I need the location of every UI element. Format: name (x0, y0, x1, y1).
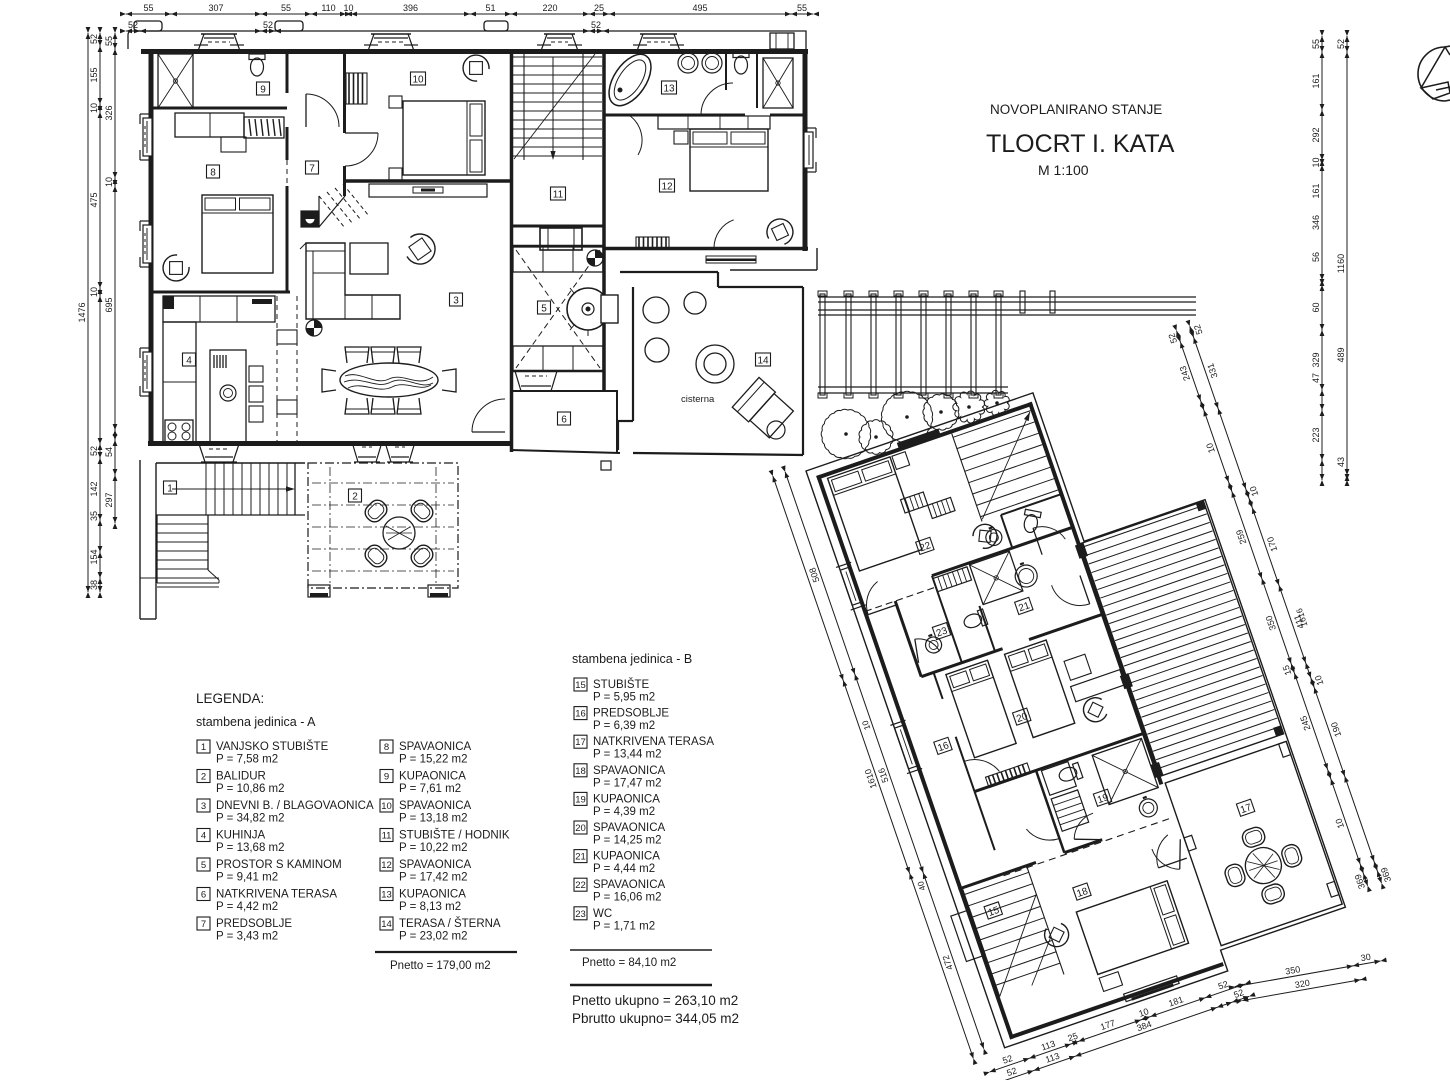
svg-text:155: 155 (89, 67, 99, 82)
svg-text:52: 52 (591, 20, 601, 30)
svg-text:220: 220 (542, 3, 557, 13)
svg-text:142: 142 (89, 481, 99, 496)
svg-text:P = 9,41 m2: P = 9,41 m2 (216, 872, 278, 884)
svg-text:43: 43 (1336, 457, 1346, 467)
svg-text:12: 12 (381, 860, 392, 871)
svg-text:4: 4 (186, 356, 192, 367)
svg-text:695: 695 (104, 297, 114, 312)
svg-text:10: 10 (89, 103, 99, 113)
svg-text:SPAVAONICA: SPAVAONICA (399, 741, 472, 753)
svg-text:P = 17,42 m2: P = 17,42 m2 (399, 872, 468, 884)
svg-text:DNEVNI B. / BLAGOVAONICA: DNEVNI B. / BLAGOVAONICA (216, 800, 374, 812)
svg-text:Pnetto = 179,00 m2: Pnetto = 179,00 m2 (390, 960, 491, 972)
svg-text:161: 161 (1311, 183, 1321, 198)
svg-text:NOVOPLANIRANO STANJE: NOVOPLANIRANO STANJE (990, 102, 1162, 117)
svg-text:Pnetto ukupno = 263,10 m2: Pnetto ukupno = 263,10 m2 (572, 993, 738, 1008)
svg-text:14: 14 (757, 356, 769, 367)
svg-text:110: 110 (321, 3, 335, 13)
svg-text:52: 52 (1336, 39, 1346, 49)
svg-text:154: 154 (89, 549, 99, 564)
svg-text:KUPAONICA: KUPAONICA (399, 889, 466, 901)
svg-text:KUPAONICA: KUPAONICA (593, 793, 660, 805)
svg-text:223: 223 (1311, 427, 1321, 442)
svg-text:3: 3 (201, 801, 206, 812)
svg-text:KUHINJA: KUHINJA (216, 830, 266, 842)
svg-text:P = 7,58 m2: P = 7,58 m2 (216, 754, 278, 766)
svg-text:P = 6,39 m2: P = 6,39 m2 (593, 720, 655, 732)
svg-text:cisterna: cisterna (681, 394, 715, 405)
svg-text:55: 55 (143, 3, 153, 13)
svg-text:22: 22 (575, 880, 586, 891)
svg-text:P = 13,44 m2: P = 13,44 m2 (593, 749, 662, 761)
svg-text:25: 25 (594, 3, 604, 13)
svg-text:51: 51 (485, 3, 495, 13)
svg-text:SPAVAONICA: SPAVAONICA (399, 800, 472, 812)
svg-text:3: 3 (453, 296, 459, 307)
svg-text:Pbrutto ukupno= 344,05 m2: Pbrutto ukupno= 344,05 m2 (572, 1011, 739, 1026)
svg-text:NATKRIVENA TERASA: NATKRIVENA TERASA (593, 736, 714, 748)
svg-text:NATKRIVENA TERASA: NATKRIVENA TERASA (216, 889, 337, 901)
svg-text:1: 1 (201, 742, 206, 753)
svg-text:15: 15 (575, 680, 586, 691)
svg-text:13: 13 (381, 890, 392, 901)
svg-text:1160: 1160 (1336, 254, 1346, 273)
svg-text:52: 52 (89, 34, 99, 44)
svg-text:P = 23,02 m2: P = 23,02 m2 (399, 931, 468, 943)
svg-text:13: 13 (663, 84, 675, 95)
svg-text:52: 52 (263, 20, 273, 30)
svg-text:PROSTOR S KAMINOM: PROSTOR S KAMINOM (216, 859, 342, 871)
svg-text:P = 17,47 m2: P = 17,47 m2 (593, 777, 662, 789)
svg-text:P = 1,71 m2: P = 1,71 m2 (593, 920, 655, 932)
svg-text:14: 14 (381, 919, 392, 930)
svg-text:23: 23 (575, 909, 586, 920)
svg-text:396: 396 (403, 3, 418, 13)
svg-text:10: 10 (89, 287, 99, 297)
svg-text:17: 17 (575, 737, 586, 748)
svg-text:P = 4,42 m2: P = 4,42 m2 (216, 901, 278, 913)
svg-text:7: 7 (309, 164, 315, 175)
svg-text:292: 292 (1311, 127, 1321, 142)
svg-text:52: 52 (128, 20, 138, 30)
svg-text:P = 16,06 m2: P = 16,06 m2 (593, 892, 662, 904)
svg-text:stambena jedinica - B: stambena jedinica - B (572, 652, 692, 666)
svg-text:489: 489 (1336, 347, 1346, 362)
svg-text:20: 20 (575, 823, 586, 834)
svg-text:P = 5,95 m2: P = 5,95 m2 (593, 692, 655, 704)
svg-text:P = 4,39 m2: P = 4,39 m2 (593, 806, 655, 818)
svg-text:11: 11 (382, 831, 392, 842)
svg-text:30: 30 (1360, 952, 1372, 964)
svg-text:Pnetto = 84,10 m2: Pnetto = 84,10 m2 (582, 957, 676, 969)
svg-text:5: 5 (201, 860, 206, 871)
svg-text:TERASA / ŠTERNA: TERASA / ŠTERNA (399, 917, 501, 930)
svg-text:stambena jedinica - A: stambena jedinica - A (196, 715, 316, 729)
svg-text:PREDSOBLJE: PREDSOBLJE (216, 918, 292, 930)
svg-text:60: 60 (1311, 302, 1321, 312)
svg-text:10: 10 (412, 75, 424, 86)
svg-text:55: 55 (1311, 39, 1321, 49)
svg-text:56: 56 (1311, 252, 1321, 262)
svg-text:6: 6 (201, 890, 206, 901)
svg-text:SPAVAONICA: SPAVAONICA (593, 765, 666, 777)
svg-text:P = 8,13 m2: P = 8,13 m2 (399, 901, 461, 913)
svg-text:1: 1 (167, 484, 173, 495)
svg-text:18: 18 (575, 766, 586, 777)
svg-text:LEGENDA:: LEGENDA: (196, 691, 264, 706)
svg-text:52: 52 (89, 446, 99, 456)
svg-text:KUPAONICA: KUPAONICA (399, 771, 466, 783)
svg-text:PREDSOBLJE: PREDSOBLJE (593, 708, 669, 720)
svg-text:21: 21 (575, 852, 586, 863)
svg-text:161: 161 (1311, 73, 1321, 88)
svg-text:9: 9 (384, 772, 389, 783)
svg-text:4: 4 (201, 831, 206, 842)
svg-text:P = 13,68 m2: P = 13,68 m2 (216, 842, 285, 854)
svg-text:SPAVAONICA: SPAVAONICA (593, 879, 666, 891)
svg-text:54: 54 (104, 447, 114, 457)
svg-text:495: 495 (692, 3, 707, 13)
svg-text:TLOCRT I. KATA: TLOCRT I. KATA (986, 130, 1175, 158)
svg-text:P = 3,43 m2: P = 3,43 m2 (216, 931, 278, 943)
svg-text:2: 2 (201, 772, 206, 783)
svg-text:47: 47 (1311, 373, 1321, 383)
svg-text:329: 329 (1311, 352, 1321, 367)
svg-text:P = 4,44 m2: P = 4,44 m2 (593, 863, 655, 875)
svg-text:SPAVAONICA: SPAVAONICA (593, 822, 666, 834)
svg-text:10: 10 (381, 801, 392, 812)
svg-text:M 1:100: M 1:100 (1038, 162, 1089, 178)
svg-text:P = 7,61 m2: P = 7,61 m2 (399, 783, 461, 795)
svg-text:55: 55 (281, 3, 291, 13)
svg-text:8: 8 (384, 742, 389, 753)
svg-text:16: 16 (575, 709, 586, 720)
svg-text:11: 11 (553, 190, 564, 201)
svg-text:STUBIŠTE: STUBIŠTE (593, 678, 650, 691)
svg-text:38: 38 (89, 580, 99, 590)
svg-text:10: 10 (1311, 157, 1321, 167)
svg-text:BALIDUR: BALIDUR (216, 771, 266, 783)
svg-text:297: 297 (104, 492, 114, 507)
svg-text:SPAVAONICA: SPAVAONICA (399, 859, 472, 871)
svg-text:10: 10 (104, 177, 114, 187)
svg-text:307: 307 (208, 3, 223, 13)
svg-text:P = 13,18 m2: P = 13,18 m2 (399, 813, 468, 825)
svg-text:8: 8 (210, 168, 216, 179)
svg-text:19: 19 (575, 794, 586, 805)
svg-text:P = 14,25 m2: P = 14,25 m2 (593, 835, 662, 847)
svg-text:346: 346 (1311, 215, 1321, 230)
svg-text:10: 10 (343, 3, 353, 13)
svg-text:6: 6 (561, 415, 567, 426)
svg-text:WC: WC (593, 908, 612, 920)
svg-text:55: 55 (797, 3, 807, 13)
svg-text:12: 12 (661, 182, 673, 193)
svg-text:326: 326 (104, 105, 114, 120)
svg-text:1476: 1476 (77, 302, 87, 322)
svg-text:9: 9 (260, 85, 266, 96)
svg-text:P = 10,86 m2: P = 10,86 m2 (216, 783, 285, 795)
svg-text:35: 35 (89, 511, 99, 521)
svg-text:55: 55 (104, 36, 114, 46)
svg-text:2: 2 (352, 492, 358, 503)
svg-text:5: 5 (541, 304, 547, 315)
svg-text:475: 475 (89, 192, 99, 207)
svg-text:P = 15,22 m2: P = 15,22 m2 (399, 754, 468, 766)
svg-text:P = 10,22 m2: P = 10,22 m2 (399, 842, 468, 854)
svg-text:STUBIŠTE / HODNIK: STUBIŠTE / HODNIK (399, 829, 510, 842)
svg-text:KUPAONICA: KUPAONICA (593, 851, 660, 863)
svg-text:P = 34,82 m2: P = 34,82 m2 (216, 813, 285, 825)
svg-text:VANJSKO STUBIŠTE: VANJSKO STUBIŠTE (216, 740, 329, 753)
svg-text:7: 7 (201, 919, 206, 930)
